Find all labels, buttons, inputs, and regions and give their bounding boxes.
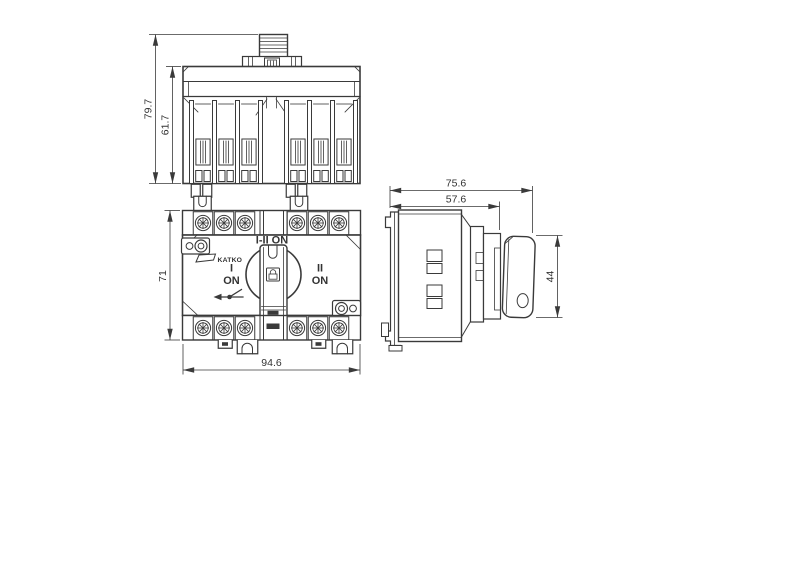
bottom-arch-tab [332, 340, 353, 354]
terminal-screw [193, 317, 213, 340]
dim-label-depth-body: 57.6 [446, 194, 467, 206]
side-body [399, 210, 471, 342]
position-label-left-2: ON [223, 275, 240, 287]
bottom-terminal-strip [183, 316, 361, 341]
dim-label-front-width: 94.6 [261, 357, 282, 369]
dim-label-handle-height: 44 [545, 271, 557, 283]
terminal-screw [329, 212, 349, 235]
din-clip-lever [382, 323, 389, 337]
position-label-right-1: II [317, 263, 323, 275]
top-fixing-tab [290, 196, 308, 211]
terminal-screw [308, 317, 328, 340]
front-face: KATKO I-II ON I ON II ON [182, 235, 361, 319]
mounting-foot [191, 184, 200, 197]
terminal-screw [235, 212, 255, 235]
handle-lock-plate-top-left [182, 238, 210, 254]
bottom-flat-tab [312, 340, 326, 348]
terminal-screw [287, 212, 307, 235]
mounting-foot [203, 184, 212, 197]
technical-drawing-page: 79.7 61.7 [0, 0, 800, 566]
top-fixing-tab [194, 196, 212, 211]
terminal-screw [287, 317, 307, 340]
din-clip-foot [389, 346, 402, 352]
switch-shaft [260, 35, 288, 58]
front-view: KATKO I-II ON I ON II ON [157, 196, 361, 374]
handle-lock-plate-bottom-right [333, 301, 361, 317]
mounting-foot [298, 184, 307, 197]
terminal-screw [308, 212, 328, 235]
handle-adapter-plates [471, 227, 501, 323]
handle-profile [502, 236, 535, 318]
terminal-screw [329, 317, 349, 340]
dim-label-front-height: 71 [157, 270, 169, 282]
dim-label-depth-overall: 75.6 [446, 178, 467, 190]
mounting-foot [286, 184, 295, 197]
top-view-body [183, 67, 360, 198]
position-label-right-2: ON [312, 275, 329, 287]
top-terminal-strip [183, 211, 361, 236]
changeover-switch-drawing: 79.7 61.7 [0, 0, 800, 566]
knob-handle-bar [260, 245, 287, 319]
side-view: 75.6 57.6 44 [382, 178, 563, 352]
dimension-handle-height: 44 [536, 236, 563, 318]
terminal-screw [214, 212, 234, 235]
position-label-left-1: I [230, 263, 233, 275]
dimension-front-height: 71 [157, 211, 180, 341]
dim-label-body-height: 61.7 [160, 115, 172, 136]
terminal-screw [235, 317, 255, 340]
top-view: 79.7 61.7 [143, 35, 361, 198]
terminal-screw [193, 212, 213, 235]
dimension-body-height: 61.7 [160, 67, 182, 184]
terminal-screw [214, 317, 234, 340]
bottom-arch-tab [237, 340, 258, 354]
bottom-flat-tab [218, 340, 232, 348]
dim-label-overall-height: 79.7 [143, 99, 155, 120]
